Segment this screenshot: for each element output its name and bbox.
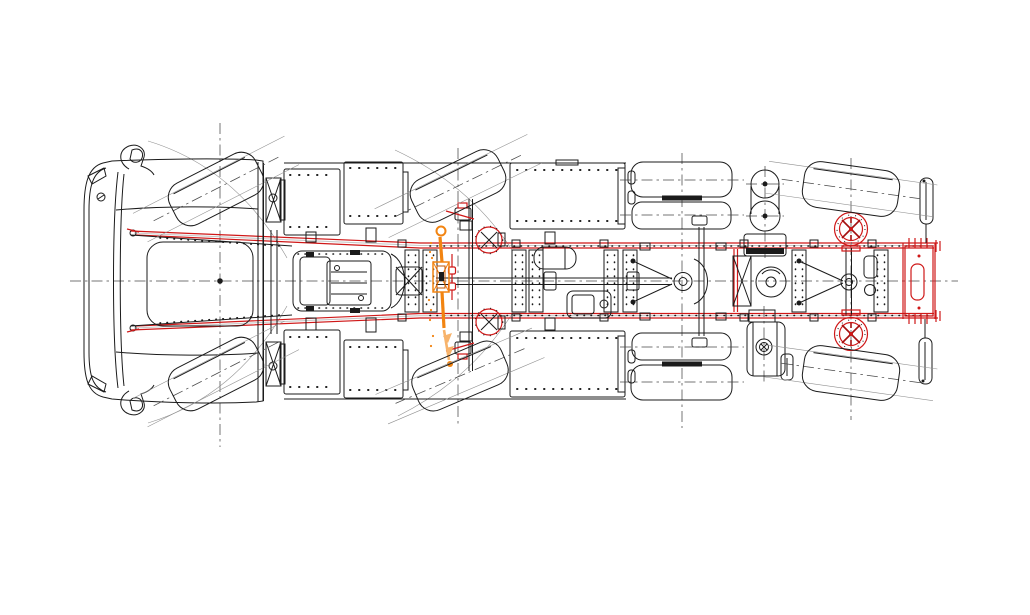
front-suspension xyxy=(127,229,292,332)
air-tanks-group xyxy=(744,166,786,258)
mud-flap-left xyxy=(920,178,933,243)
battery-box xyxy=(280,330,340,394)
side-boxes xyxy=(280,160,635,399)
cab-rear-wall xyxy=(258,162,281,402)
chassis-top-view-drawing: Truck chassis engineering drawing - top … xyxy=(0,0,1030,615)
tire-axle1-right xyxy=(130,315,302,433)
wheels-group xyxy=(130,128,939,433)
battery-box xyxy=(280,169,340,235)
axle3-group xyxy=(631,216,727,347)
corner-marker-left xyxy=(88,168,106,184)
roof-edge-left xyxy=(116,207,258,210)
corner-marker-right xyxy=(88,376,106,392)
air-bellows xyxy=(756,267,786,297)
brand-logo-mark xyxy=(97,193,105,201)
windshield-line xyxy=(114,172,119,388)
tire-axle2-left xyxy=(372,128,545,244)
mid-frame-components xyxy=(534,247,611,318)
towing-slot xyxy=(911,264,924,300)
tool-box xyxy=(344,340,408,398)
axle1-center-dot xyxy=(217,278,223,284)
axle4-differential xyxy=(841,274,857,290)
mud-flap-right xyxy=(919,319,932,384)
axle3-banjo-housing xyxy=(694,259,708,304)
roof-edge-right xyxy=(116,352,258,355)
tire-axle1-left xyxy=(130,130,302,248)
axle2-hub-face-right xyxy=(475,308,503,336)
axle3-differential xyxy=(674,273,692,291)
storage-box xyxy=(510,331,625,397)
axle2-hub-face-left xyxy=(475,226,503,254)
roof-panel xyxy=(147,242,253,326)
brake-drum-axle4-left xyxy=(835,213,868,246)
frame-rail-right xyxy=(131,318,938,330)
frame-rail-left xyxy=(131,231,938,243)
front-bumper xyxy=(89,168,106,392)
orange-flecks xyxy=(428,242,434,347)
brake-drum-axle4-right xyxy=(835,318,868,351)
chassis-drawing-canvas: Truck chassis engineering drawing - top … xyxy=(0,0,1030,615)
